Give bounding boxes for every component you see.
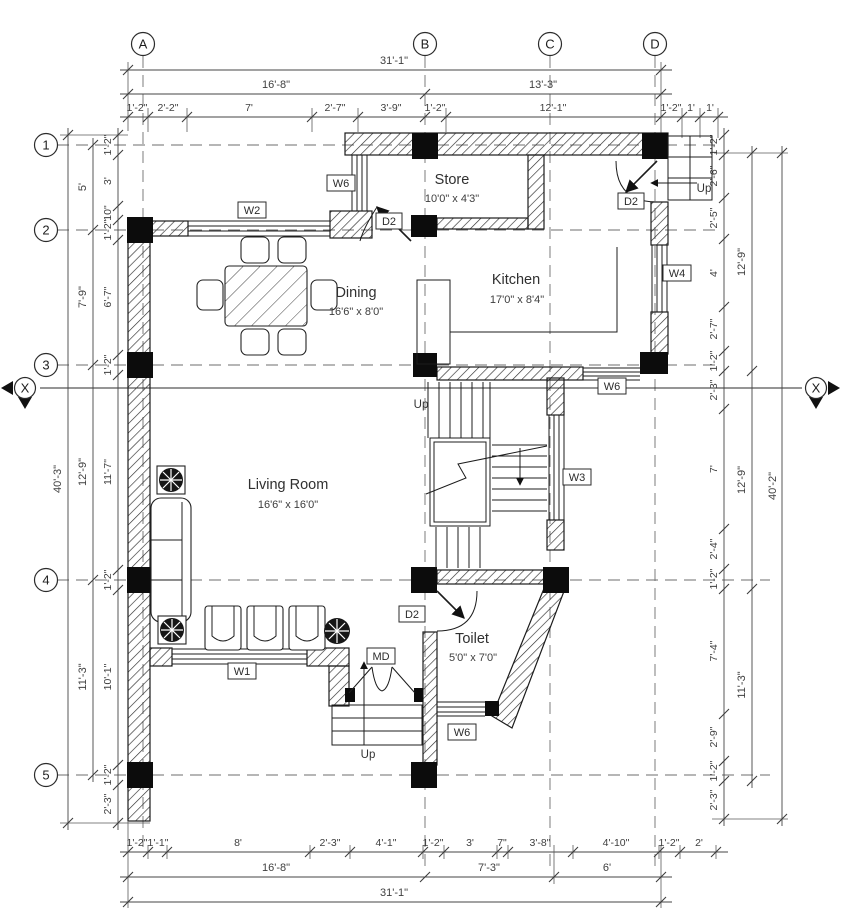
column-b1 (412, 133, 438, 159)
grid-bubble-3: 3 (35, 354, 58, 377)
grid-bubble-1: 1 (35, 134, 58, 157)
dim-right-span: 11'-3" (736, 671, 748, 698)
door-md-main (349, 667, 415, 693)
dim-top-chain: 3'-9" (381, 102, 402, 114)
dim-right-chain: 1'-2" (708, 760, 720, 781)
wall-d-upper (651, 202, 668, 245)
dim-bottom-chain: 2'-3" (320, 837, 341, 849)
room-label-dining: Dining (335, 285, 376, 301)
tag-w4: W4 (663, 265, 691, 281)
door-d2-toilet (437, 591, 477, 631)
dim-right-chain: 2'-5" (708, 207, 720, 228)
tag-w6-kitchen: W6 (598, 378, 626, 394)
wall-d-lower (651, 312, 668, 354)
dim-right-span: 12'-9" (736, 248, 748, 276)
dim-right-chain: 1'-2" (708, 350, 720, 371)
dimensions-right: 40'-2" 12'-9" 12'-9" 11'-3" 1'-2" 2'-6" … (708, 128, 788, 826)
dining-chair (278, 237, 306, 263)
dim-right-chain: 4' (708, 269, 720, 277)
plant-upper (157, 466, 185, 494)
wall-left-outer (128, 231, 150, 821)
tag-w3: W3 (563, 469, 591, 485)
tag-w6-toilet: W6 (448, 724, 476, 740)
column-a4 (127, 567, 153, 593)
stair-flight-upper (428, 382, 490, 438)
floor-plan-canvas: A B C D 1 2 3 4 5 X (0, 0, 842, 916)
column-b4 (411, 567, 437, 593)
dim-right-chain: 1'-2" (708, 568, 720, 589)
column-b2 (411, 215, 437, 237)
section-marker-right: X (806, 378, 841, 410)
grid-label-4: 4 (42, 573, 49, 588)
room-size-toilet: 5'0" x 7'0" (449, 652, 497, 664)
tag-w1: W1 (228, 663, 256, 679)
tag-d2-kitchen: D2 (618, 193, 644, 209)
grid-bubble-D: D (644, 33, 667, 56)
section-marker-left: X (1, 378, 36, 410)
grid-bubble-B: B (414, 33, 437, 56)
wall-row4-toilet-top (437, 570, 545, 584)
wall-top (345, 133, 668, 155)
column-d1 (642, 133, 668, 159)
section-label-left: X (21, 381, 30, 396)
dining-chair (241, 329, 269, 355)
window-w1 (172, 649, 307, 664)
dim-left-chain: 1'-2" (102, 134, 114, 155)
dim-left-chain: 3' (102, 177, 114, 185)
dim-right-total: 40'-2" (767, 472, 779, 500)
staircase: Up (414, 382, 547, 568)
column-a3 (127, 352, 153, 378)
doors (349, 161, 657, 693)
wall-w1-left-end (150, 648, 172, 666)
dim-bottom-chain: 1'-2" (127, 837, 148, 849)
dim-bottom-chain: 1'-1" (148, 837, 169, 849)
window-w3 (549, 415, 564, 520)
room-label-toilet: Toilet (455, 631, 489, 647)
grid-bubble-5: 5 (35, 764, 58, 787)
dim-bottom-chain: 3'-8" (530, 837, 551, 849)
wall-stair-right-bottom (547, 520, 564, 550)
column-b5 (411, 762, 437, 788)
tag-md: MD (367, 648, 395, 664)
room-size-dining: 16'6" x 8'0" (329, 306, 383, 318)
stair-flight-lower (436, 527, 480, 568)
dining-chair (278, 329, 306, 355)
room-label-living: Living Room (248, 477, 329, 493)
wall-store-bottom (437, 218, 528, 229)
svg-text:W4: W4 (669, 268, 686, 280)
tag-w6-store: W6 (327, 175, 355, 191)
grid-label-5: 5 (42, 768, 49, 783)
column-d3 (640, 352, 668, 374)
lounge-chairs (205, 606, 325, 650)
grid-label-b: B (421, 37, 430, 52)
dimensions-top: 31'-1" 16'-8" 13'-3" 1'-2" 2'-2" 7' 2'-7… (120, 55, 728, 138)
wall-toilet-diagonal (492, 586, 566, 728)
dim-left-total: 40'-3" (52, 465, 64, 493)
room-size-kitchen: 17'0" x 8'4" (490, 294, 544, 306)
dim-top-chain: 2'-7" (325, 102, 346, 114)
svg-text:MD: MD (372, 651, 389, 663)
dim-top-chain: 12'-1" (540, 102, 567, 114)
grid-label-d: D (650, 37, 659, 52)
room-size-store: 10'0" x 4'3" (425, 193, 479, 205)
dim-left-chain: 2'-3" (102, 793, 114, 814)
dim-right-chain: 1'-2" (708, 134, 720, 155)
grid-bubble-4: 4 (35, 569, 58, 592)
dim-top-chain: 1' (706, 102, 714, 114)
dim-left-span: 12'-9" (77, 458, 89, 486)
dining-chair (241, 237, 269, 263)
svg-text:D2: D2 (405, 609, 419, 621)
svg-text:D2: D2 (382, 216, 396, 228)
wall-w1-right-end (307, 648, 349, 666)
dim-right-chain: 2'-9" (708, 726, 720, 747)
dim-top-span: 13'-3" (529, 79, 557, 91)
dining-set (197, 237, 337, 355)
svg-text:W6: W6 (604, 381, 621, 393)
dim-bottom-chain: 4'-1" (376, 837, 397, 849)
dim-bottom-chain: 1'-2" (423, 837, 444, 849)
dining-chair (197, 280, 223, 310)
wall-stair-right-top (547, 378, 564, 415)
plant-lower (158, 616, 186, 644)
dim-left-chain: 1'-2" (102, 569, 114, 590)
column-toilet-corner (485, 701, 499, 716)
dim-bottom-chain: 4'-10" (603, 837, 630, 849)
dim-top-chain: 7' (245, 102, 253, 114)
dim-left-chain: 1'-2" (102, 354, 114, 375)
dim-left-chain: 1'-2" (102, 764, 114, 785)
tag-w2: W2 (238, 202, 266, 218)
stair-well (430, 438, 490, 526)
dim-left-span: 5' (77, 183, 89, 191)
window-w6-toilet (437, 702, 485, 716)
dim-top-chain: 1'-2" (127, 102, 148, 114)
dim-left-chain: 11'-7" (102, 459, 114, 485)
svg-text:W3: W3 (569, 472, 586, 484)
dim-left-span: 7'-9" (77, 286, 89, 308)
grid-label-1: 1 (42, 138, 49, 153)
section-label-right: X (812, 381, 821, 396)
grid-label-3: 3 (42, 358, 49, 373)
tag-d2-store: D2 (376, 213, 402, 229)
dim-top-chain: 1'-2" (661, 102, 682, 114)
room-size-living: 16'6" x 16'0" (258, 499, 318, 511)
dim-bottom-chain: 7" (497, 837, 507, 849)
dim-right-chain: 7' (708, 465, 720, 473)
dim-bottom-chain: 1'-2" (659, 837, 680, 849)
column-c4 (543, 567, 569, 593)
grid-label-c: C (545, 37, 554, 52)
dim-top-total: 31'-1" (380, 55, 408, 67)
room-label-kitchen: Kitchen (492, 272, 540, 288)
entry-up-label-bottom: Up (361, 749, 376, 761)
grid-label-2: 2 (42, 223, 49, 238)
dim-right-chain: 2'-4" (708, 538, 720, 559)
svg-text:W2: W2 (244, 205, 261, 217)
dim-top-chain: 1'-2" (425, 102, 446, 114)
furniture (151, 237, 350, 650)
dim-right-chain: 2'-7" (708, 318, 720, 339)
tag-d2-toilet: D2 (399, 606, 425, 622)
grid-bubble-C: C (539, 33, 562, 56)
dim-right-chain: 2'-3" (708, 379, 720, 400)
dim-bottom-chain: 3' (466, 837, 474, 849)
grid-label-a: A (139, 37, 148, 52)
dim-bottom-chain: 2' (695, 837, 703, 849)
wall-w2-chunk (330, 211, 372, 238)
svg-text:W1: W1 (234, 666, 251, 678)
svg-text:D2: D2 (624, 196, 638, 208)
door-jamb-left (345, 688, 355, 702)
dim-top-chain: 1' (687, 102, 695, 114)
dim-bottom-span: 6' (603, 862, 611, 874)
dimensions-bottom: 1'-2" 1'-1" 8' 2'-3" 4'-1" 1'-2" 3' 7" 3… (120, 822, 728, 908)
dim-top-chain: 2'-2" (158, 102, 179, 114)
dim-bottom-span: 7'-3" (478, 862, 500, 874)
dim-left-chain: 10" (102, 205, 114, 221)
dim-left-span: 11'-3" (77, 663, 89, 690)
dim-bottom-span: 16'-8" (262, 862, 290, 874)
svg-text:W6: W6 (454, 727, 471, 739)
column-a2 (127, 217, 153, 243)
wall-w2-end (150, 221, 188, 236)
room-label-store: Store (435, 172, 470, 188)
stair-up-label: Up (414, 399, 429, 411)
column-a5 (127, 762, 153, 788)
dim-top-span: 16'-8" (262, 79, 290, 91)
wall-toilet-left (423, 632, 437, 765)
plant-right (324, 618, 350, 644)
grid-bubble-A: A (132, 33, 155, 56)
dining-table (225, 266, 307, 326)
sofa (151, 498, 191, 622)
dim-bottom-total: 31'-1" (380, 887, 408, 899)
entry-up-label-top: Up (697, 183, 712, 195)
window-w2 (188, 221, 330, 236)
dim-left-chain: 6'-7" (102, 286, 114, 307)
dim-left-chain: 10'-1" (102, 663, 114, 690)
svg-text:W6: W6 (333, 178, 350, 190)
dim-right-chain: 7'-4" (708, 640, 720, 661)
dim-right-chain: 2'-3" (708, 789, 720, 810)
floor-plan-page: A B C D 1 2 3 4 5 X (0, 0, 842, 916)
kitchen-fridge (417, 280, 450, 364)
wall-store-right (528, 155, 544, 229)
dim-bottom-chain: 8' (234, 837, 242, 849)
grid-bubble-2: 2 (35, 219, 58, 242)
dim-right-span: 12'-9" (736, 466, 748, 494)
door-jamb-right (414, 688, 423, 702)
kitchen-counter-edge (450, 247, 617, 332)
dim-left-chain: 1'-2" (102, 219, 114, 240)
